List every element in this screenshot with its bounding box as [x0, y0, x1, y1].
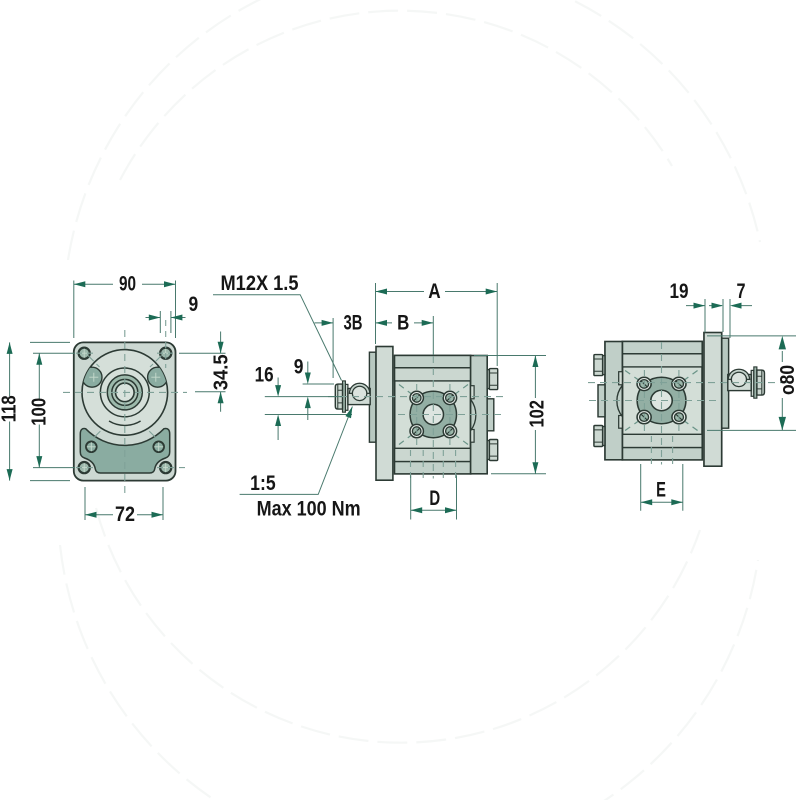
- svg-text:o80: o80: [777, 365, 799, 395]
- svg-text:A: A: [428, 280, 440, 303]
- svg-text:B: B: [397, 311, 409, 334]
- svg-text:Max 100 Nm: Max 100 Nm: [257, 496, 361, 520]
- svg-text:9: 9: [294, 356, 304, 379]
- svg-text:19: 19: [670, 280, 689, 303]
- svg-text:7: 7: [737, 280, 746, 303]
- svg-text:E: E: [656, 479, 666, 502]
- svg-text:9: 9: [188, 293, 198, 316]
- svg-text:34.5: 34.5: [211, 354, 233, 390]
- svg-text:118: 118: [0, 395, 21, 422]
- svg-text:102: 102: [527, 400, 549, 428]
- svg-text:3B: 3B: [344, 311, 363, 334]
- svg-text:1:5: 1:5: [250, 472, 276, 495]
- svg-text:72: 72: [115, 503, 135, 526]
- svg-text:D: D: [429, 487, 440, 510]
- svg-text:M12X 1.5: M12X 1.5: [221, 271, 299, 295]
- svg-text:16: 16: [255, 364, 274, 387]
- svg-text:100: 100: [28, 398, 50, 426]
- svg-text:90: 90: [119, 273, 136, 296]
